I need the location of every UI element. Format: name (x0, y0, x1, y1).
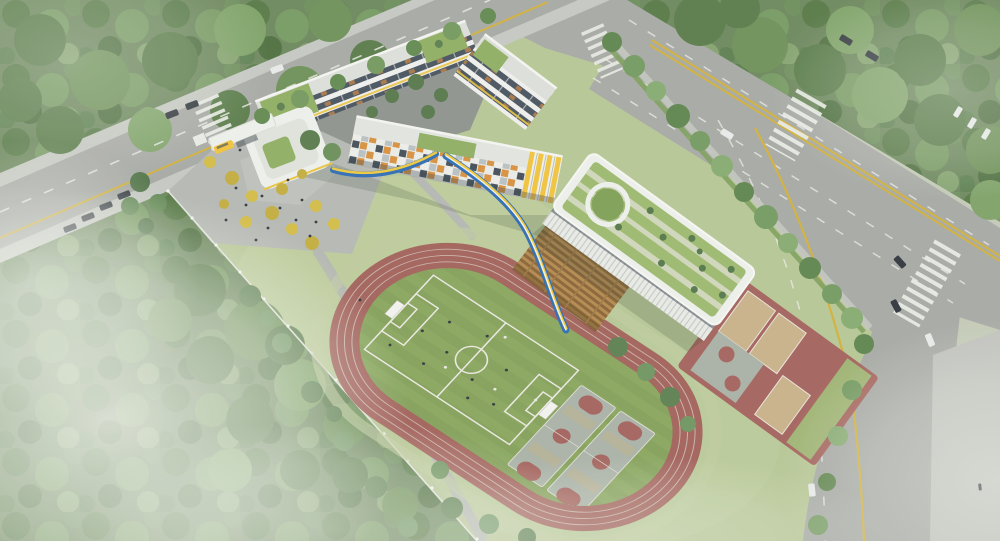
scene-canvas (0, 0, 1000, 541)
campus-aerial-rendering (0, 0, 1000, 541)
mist-overlay (0, 0, 1000, 541)
haze-veil (0, 0, 1000, 541)
